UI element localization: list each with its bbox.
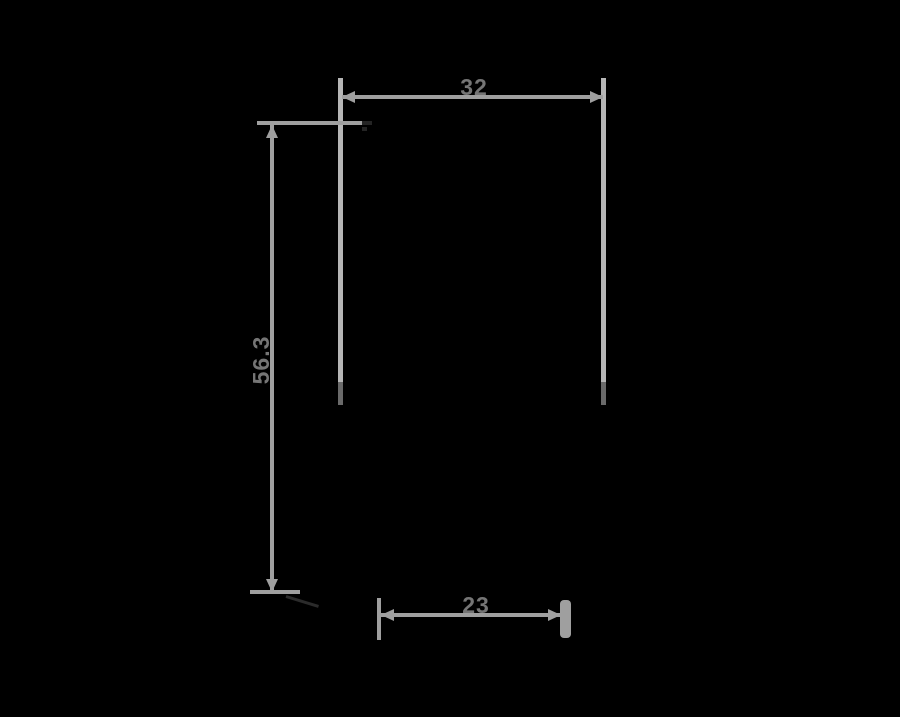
depth-dimension-label: 23 [446, 592, 506, 618]
object-edge-line [286, 595, 319, 608]
arrow-left-icon [381, 609, 394, 621]
arrow-right-icon [548, 609, 561, 621]
height-dimension-label: 56.3 [248, 320, 272, 400]
width-dimension-label: 32 [444, 74, 504, 100]
arrow-up-icon [266, 125, 278, 138]
object-corner-mark [362, 121, 372, 125]
arrow-left-icon [342, 91, 355, 103]
width-extension-line-right [601, 78, 606, 405]
arrow-down-icon [266, 579, 278, 592]
depth-end-bar-right [560, 600, 571, 638]
dimension-diagram: 32 56.3 23 [0, 0, 900, 717]
width-extension-line-left [338, 78, 343, 405]
object-corner-mark [362, 127, 367, 131]
arrow-right-icon [590, 91, 603, 103]
